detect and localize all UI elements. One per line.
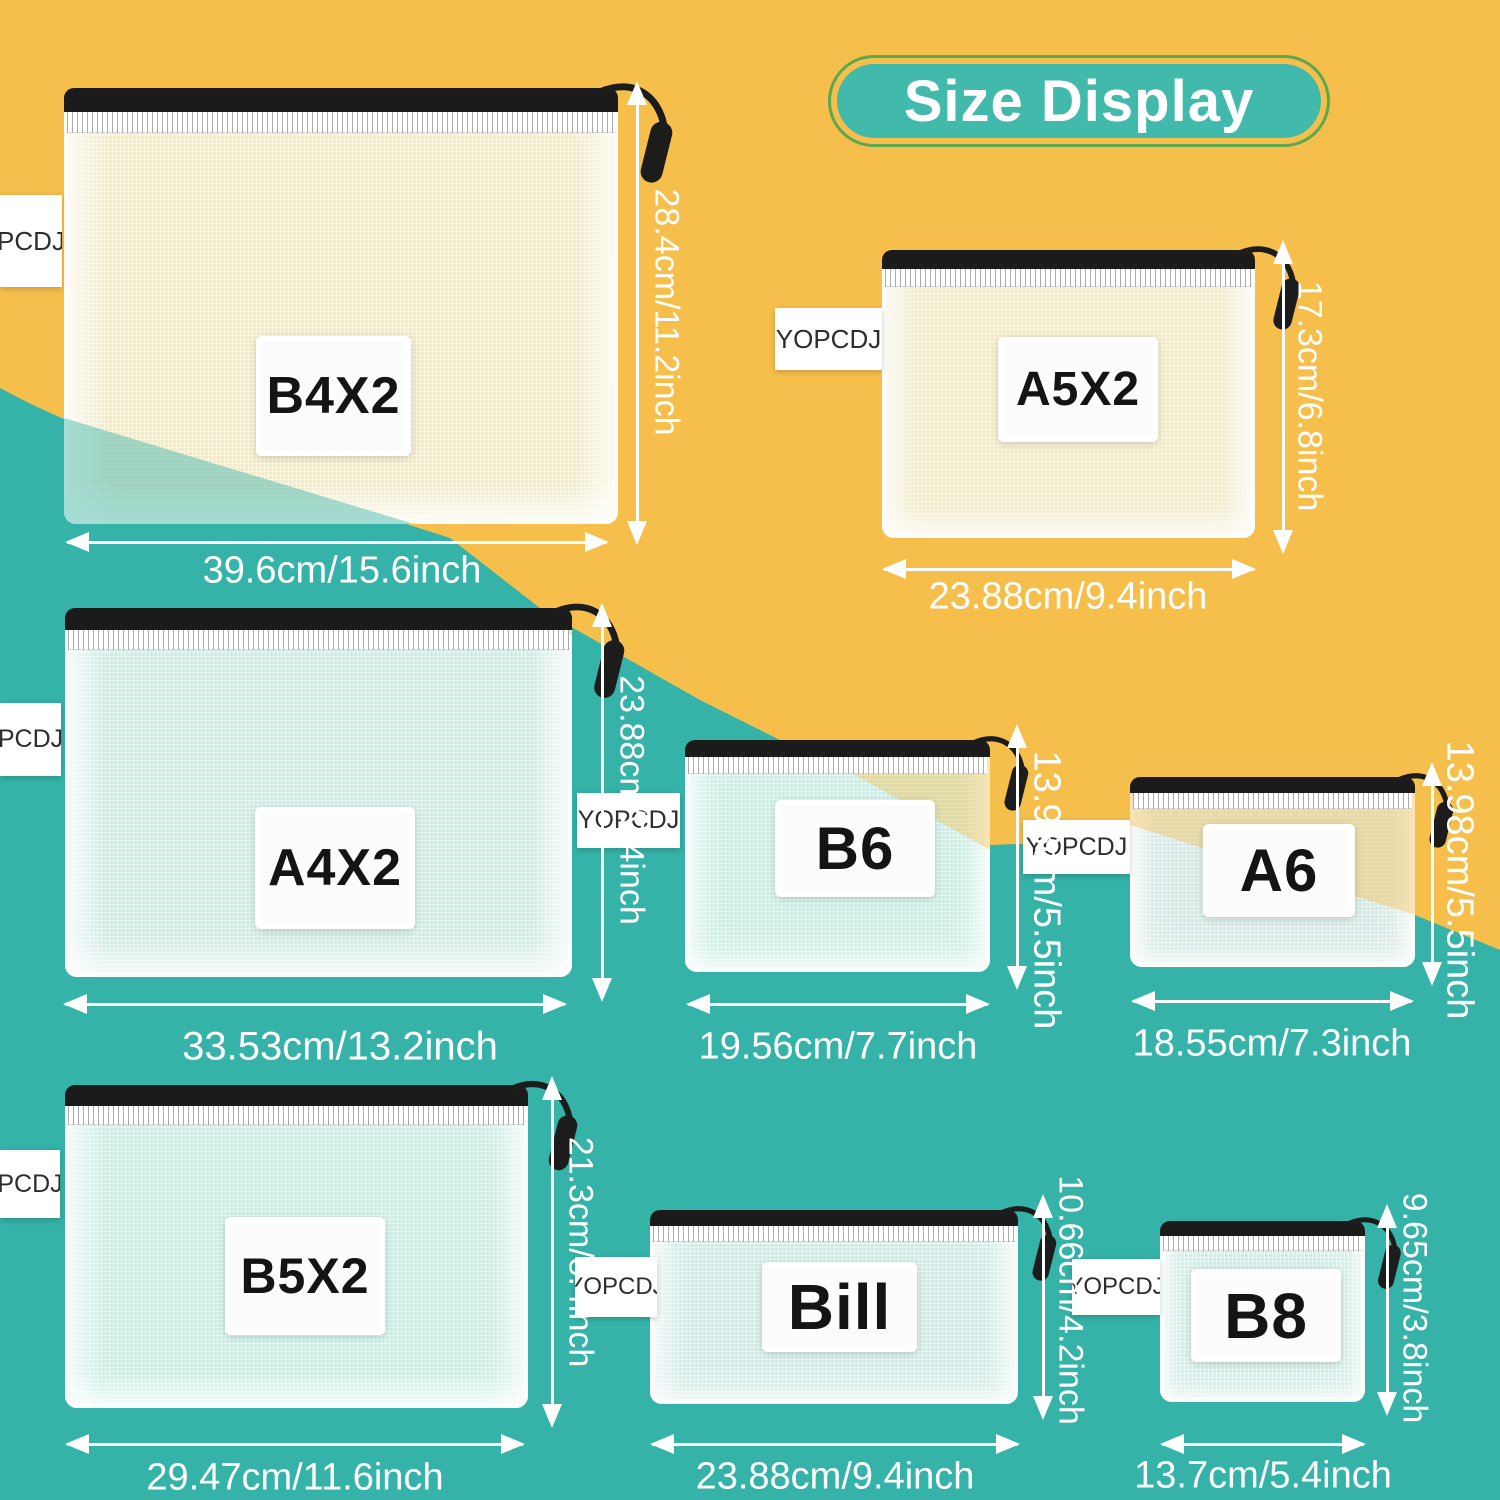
- height-dim-b4x2: 28.4cm/11.2inch: [647, 189, 686, 436]
- height-dim-a5x2: 17.3cm/6.8inch: [1290, 281, 1329, 512]
- width-dim-a4x2: 33.53cm/13.2inch: [182, 1025, 498, 1070]
- size-label-b8: B8: [1191, 1269, 1341, 1362]
- width-arrow-b6: [688, 1003, 988, 1006]
- size-label-b5x2: B5X2: [225, 1217, 385, 1335]
- width-arrow-a5x2: [884, 568, 1254, 571]
- width-dim-a6: 18.55cm/7.3inch: [1133, 1023, 1412, 1066]
- width-dim-a5x2: 23.88cm/9.4inch: [929, 576, 1208, 619]
- width-dim-bill: 23.88cm/9.4inch: [696, 1456, 975, 1499]
- brand-tag-text: PCDJ: [0, 226, 62, 257]
- height-arrow-a4x2: [601, 625, 604, 980]
- zipper: [882, 250, 1255, 269]
- zipper-teeth: [885, 269, 1252, 287]
- bag-bill: Bill: [650, 1210, 1018, 1404]
- zipper: [65, 608, 572, 630]
- height-dim-b5x2: 21.3cm/8.4inch: [561, 1137, 600, 1368]
- size-label-text: A6: [1240, 836, 1319, 905]
- zipper: [64, 88, 618, 112]
- brand-tag-text: YOPCDJ: [776, 324, 881, 355]
- zipper: [650, 1210, 1018, 1226]
- width-arrow-b4x2: [67, 541, 607, 544]
- brand-tag-a4x2: PCDJ: [0, 703, 61, 776]
- bag-b5x2: B5X2: [65, 1085, 528, 1408]
- width-arrow-bill: [652, 1443, 1018, 1446]
- height-arrow-bill: [1042, 1216, 1045, 1398]
- height-dim-a6: 13.98cm/5.5inch: [1438, 741, 1481, 1020]
- height-dim-b6: 13.98cm/5.5inch: [1025, 751, 1068, 1030]
- height-dim-a4x2: 23.88cm/9.4inch: [612, 675, 651, 925]
- width-dim-b4x2: 39.6cm/15.6inch: [203, 550, 482, 593]
- zipper-teeth: [653, 1226, 1015, 1242]
- bag-b4x2: B4X2: [64, 88, 618, 524]
- brand-tag-text: PCDJ: [0, 725, 61, 754]
- height-arrow-b6: [1016, 746, 1019, 968]
- zipper: [1160, 1221, 1365, 1236]
- zipper-teeth: [67, 112, 615, 133]
- width-dim-b5x2: 29.47cm/11.6inch: [146, 1457, 443, 1500]
- size-label-a6: A6: [1203, 824, 1355, 917]
- brand-tag-b4x2: PCDJ: [0, 195, 62, 287]
- size-label-text: B6: [816, 814, 895, 883]
- brand-tag-text: PCDJ: [0, 1170, 60, 1199]
- size-label-text: A4X2: [268, 838, 402, 898]
- size-label-text: B4X2: [266, 366, 400, 426]
- zipper-teeth: [68, 1106, 525, 1125]
- height-dim-b8: 9.65cm/3.8inch: [1395, 1193, 1434, 1424]
- zipper: [65, 1085, 528, 1106]
- brand-tag-b5x2: PCDJ: [0, 1150, 60, 1218]
- zipper-teeth: [68, 630, 569, 650]
- height-arrow-b5x2: [551, 1098, 554, 1406]
- width-arrow-b8: [1162, 1443, 1364, 1446]
- title-badge: Size Display: [837, 64, 1321, 138]
- width-arrow-b5x2: [67, 1443, 523, 1446]
- bag-b8: B8: [1160, 1221, 1365, 1402]
- height-arrow-b8: [1386, 1226, 1389, 1394]
- width-arrow-a6: [1133, 1000, 1412, 1003]
- bag-a6: A6: [1130, 777, 1415, 967]
- bag-a4x2: A4X2: [65, 608, 572, 977]
- size-label-text: Bill: [788, 1270, 892, 1344]
- zipper: [685, 740, 990, 757]
- width-arrow-a4x2: [65, 1003, 565, 1006]
- width-dim-b6: 19.56cm/7.7inch: [699, 1026, 978, 1069]
- zipper-teeth: [1163, 1236, 1362, 1251]
- zipper: [1130, 777, 1415, 793]
- size-label-text: A5X2: [1016, 362, 1140, 417]
- height-arrow-a5x2: [1282, 262, 1285, 532]
- page-title: Size Display: [904, 68, 1254, 135]
- size-label-text: B5X2: [240, 1247, 369, 1305]
- bag-a5x2: A5X2: [882, 250, 1255, 538]
- size-label-b4x2: B4X2: [256, 336, 411, 456]
- title-badge-ring: Size Display: [828, 55, 1330, 147]
- size-label-a4x2: A4X2: [255, 807, 415, 929]
- size-label-b6: B6: [775, 800, 935, 897]
- zipper-teeth: [1133, 793, 1412, 809]
- zipper-teeth: [688, 757, 987, 774]
- size-label-a5x2: A5X2: [998, 337, 1158, 442]
- height-dim-bill: 10.66cm/4.2inch: [1051, 1175, 1090, 1425]
- size-label-text: B8: [1224, 1279, 1308, 1353]
- size-label-bill: Bill: [762, 1262, 917, 1352]
- height-arrow-a6: [1431, 784, 1434, 964]
- width-dim-b8: 13.7cm/5.4inch: [1134, 1455, 1392, 1498]
- brand-tag-a5x2: YOPCDJ: [775, 308, 882, 370]
- height-arrow-b4x2: [636, 103, 639, 523]
- size-display-infographic: Size Display B4X2 PCDJ 28.4cm/11.2inch 3…: [0, 0, 1500, 1500]
- bag-b6: B6: [685, 740, 990, 972]
